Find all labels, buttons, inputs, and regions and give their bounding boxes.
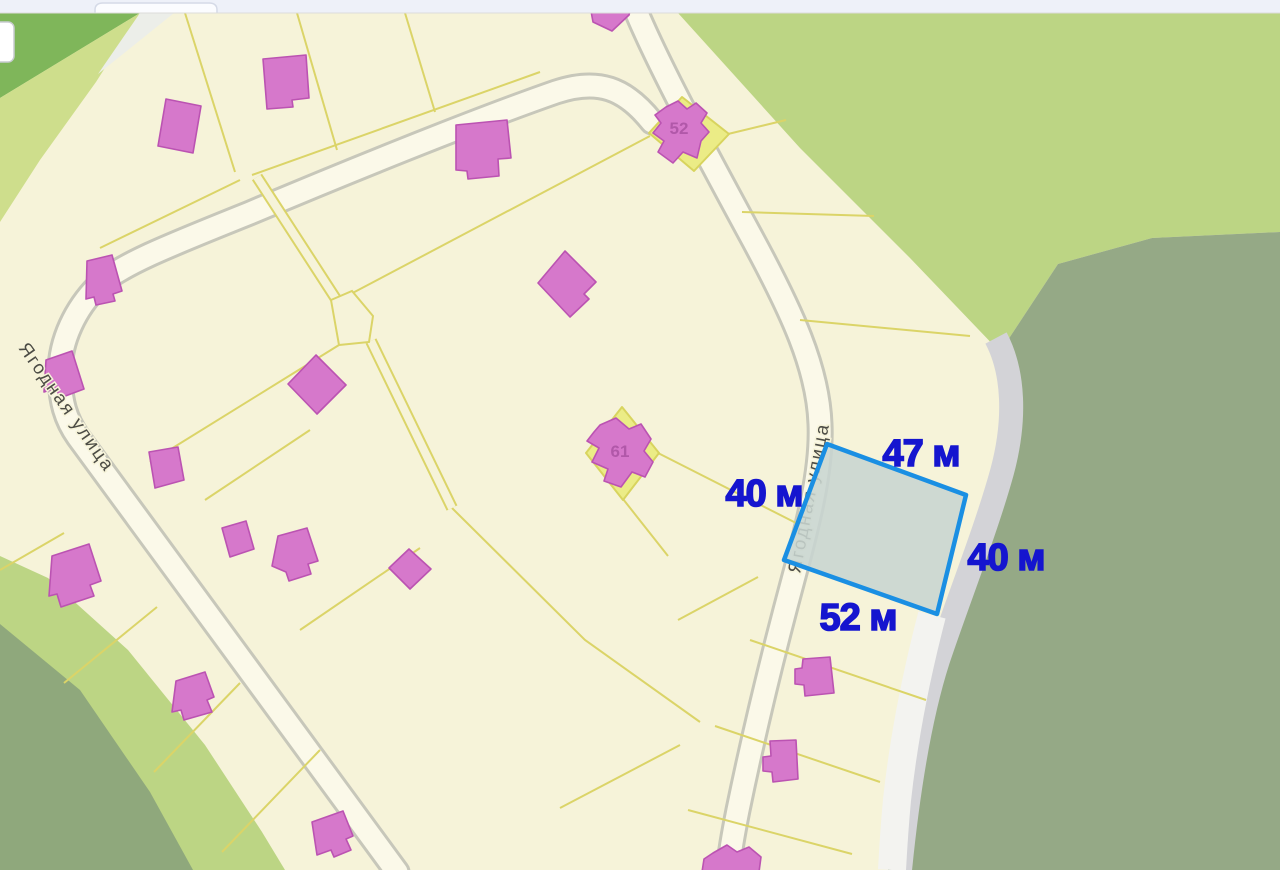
building-number-61: 61 bbox=[611, 442, 630, 461]
plot-dimension-right: 40 м bbox=[968, 537, 1045, 579]
browser-bar bbox=[0, 0, 1280, 13]
plot-dimension-top: 47 м bbox=[883, 433, 960, 475]
map-control-button[interactable] bbox=[0, 22, 14, 62]
plot-dimension-bottom: 52 м bbox=[820, 597, 897, 639]
building-footprint bbox=[158, 99, 201, 153]
browser-tab[interactable] bbox=[95, 3, 217, 13]
plot-dimension-left: 40 м bbox=[726, 473, 803, 515]
building-footprint bbox=[149, 447, 184, 488]
map-screenshot: 52 61 Ягодная улица Ягодная улица 47 м 4… bbox=[0, 0, 1280, 870]
building-number-52: 52 bbox=[670, 119, 689, 138]
map-canvas[interactable]: 52 61 Ягодная улица Ягодная улица 47 м 4… bbox=[0, 0, 1280, 870]
